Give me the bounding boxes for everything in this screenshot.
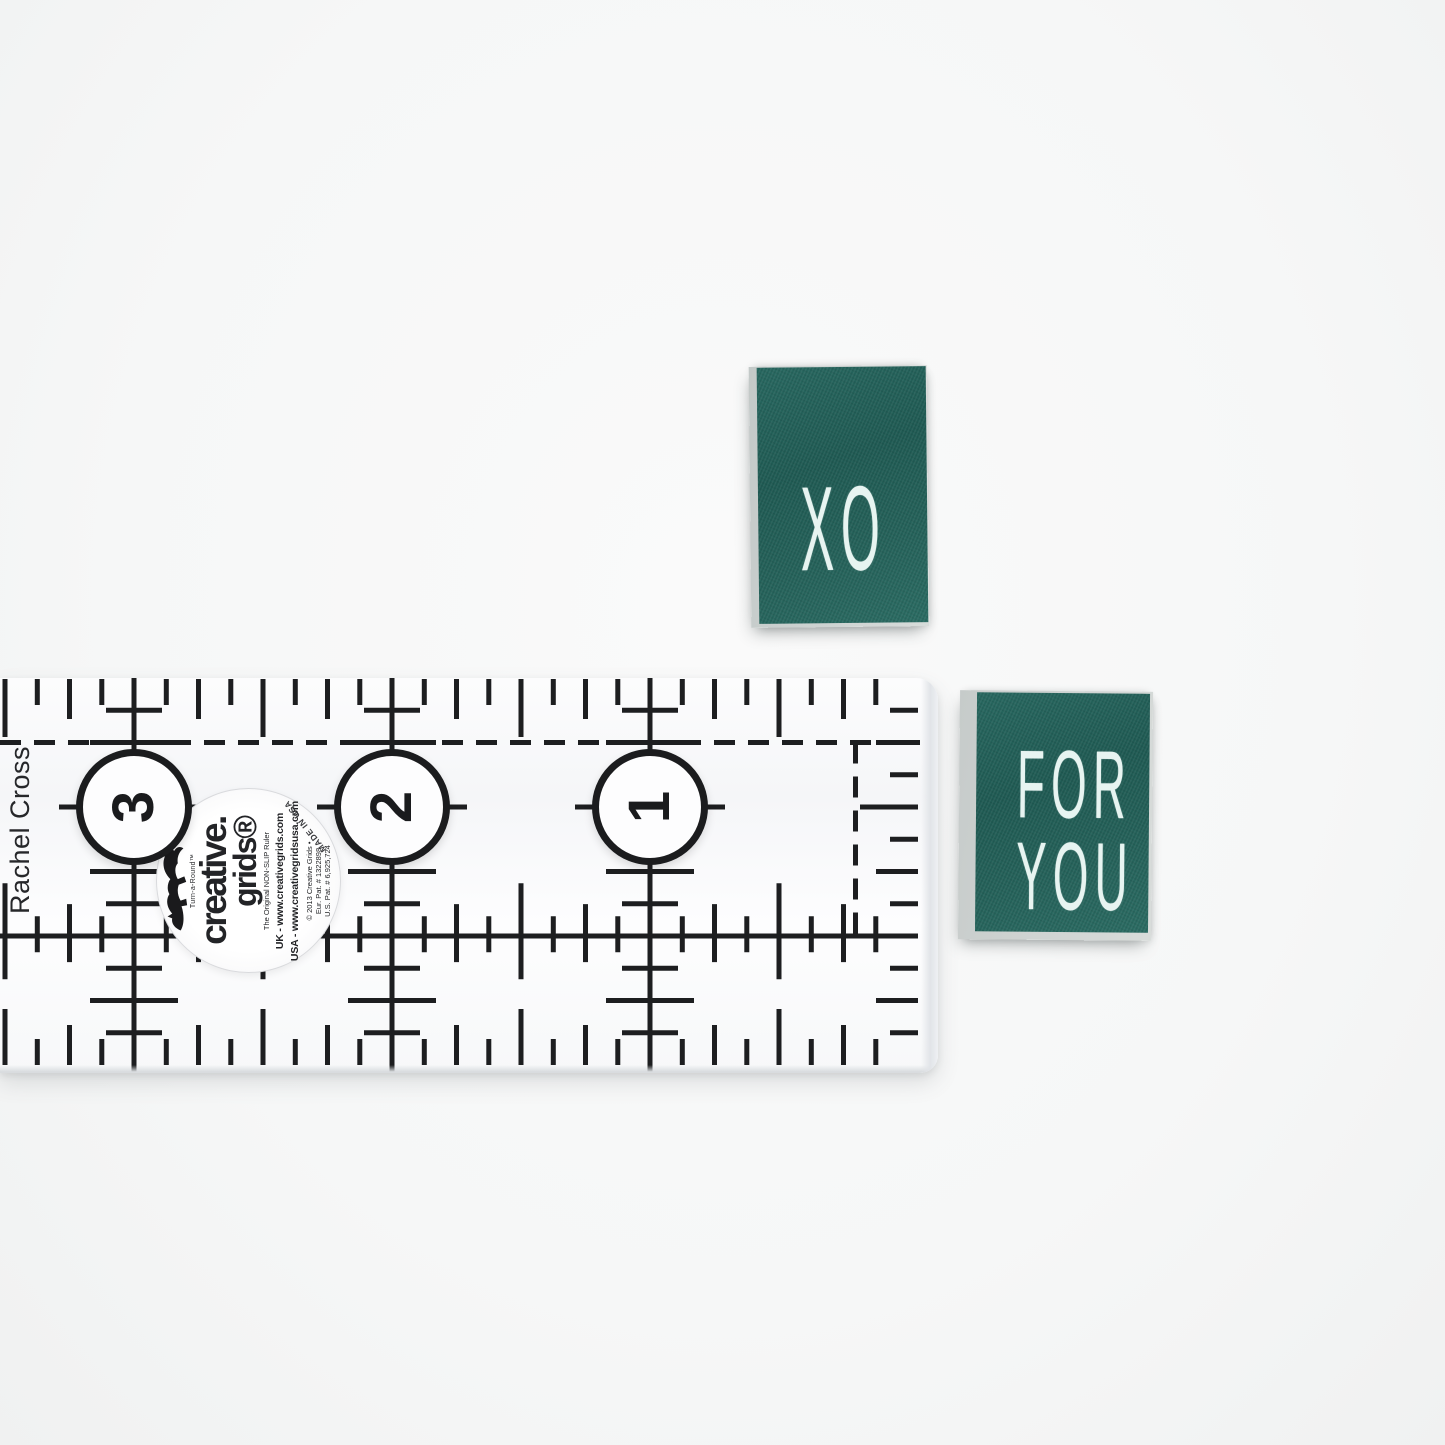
sticker-patent-us: U.S. Pat. # 6,925,724	[323, 795, 332, 967]
ruler-grid-markings	[0, 678, 938, 1073]
label-text-for: FOR	[1017, 739, 1109, 832]
ruler-brand-name: Rachel Cross	[3, 730, 37, 930]
sticker-brand-grids: grids®	[231, 795, 260, 967]
woven-label-xo: XO	[749, 365, 930, 628]
sticker-patent-eu: Eur. Pat. # 1322898	[314, 795, 323, 967]
woven-label-for-you-front: FOR YOU	[975, 692, 1150, 933]
product-photo: Rachel Cross Turn-a-Round™ creative. gri…	[0, 0, 1445, 1445]
label-text-for-you: FOR YOU	[1016, 739, 1109, 923]
inch-number-1: 1	[621, 791, 679, 823]
sticker-tagline: The Original NON-SLIP Ruler	[262, 795, 271, 967]
inch-circle-2: 2	[334, 749, 450, 865]
sticker-uk-url: UK - www.creativegrids.com	[274, 795, 286, 967]
label-text-you: YOU	[1016, 831, 1108, 924]
label-text-xo: XO	[800, 469, 886, 590]
inch-number-2: 2	[363, 791, 421, 823]
inch-number-3: 3	[105, 791, 163, 823]
inch-circle-1: 1	[592, 749, 708, 865]
quilting-ruler: Rachel Cross Turn-a-Round™ creative. gri…	[0, 678, 938, 1073]
woven-label-for-you: FOR YOU	[958, 690, 1153, 941]
inch-circle-3: 3	[76, 749, 192, 865]
woven-label-xo-front: XO	[757, 366, 929, 624]
sticker-brand-creative: creative.	[197, 795, 231, 967]
